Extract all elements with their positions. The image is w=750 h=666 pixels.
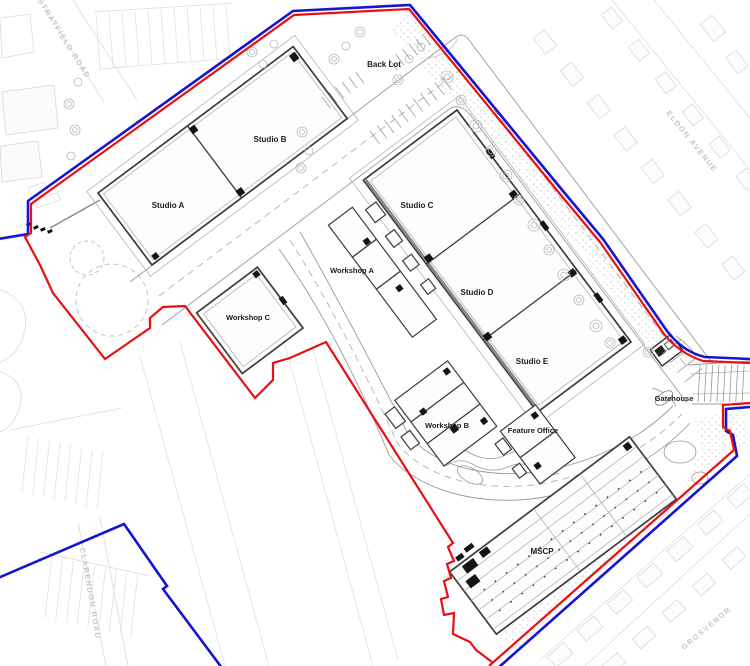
context-street-line [73, 0, 137, 100]
context-curve [0, 372, 21, 432]
terrace-line [161, 10, 165, 64]
landscape-blob [454, 462, 485, 488]
label-studio-b: Studio B [254, 135, 287, 144]
context-house [722, 547, 746, 570]
terrace-line [135, 11, 139, 65]
context-house [587, 94, 610, 118]
tree-icon [355, 27, 365, 37]
parking-bay-line [428, 88, 438, 101]
parking-bay-line [370, 131, 380, 144]
context-house-outline [668, 191, 691, 215]
context-house [641, 159, 664, 183]
context-house [736, 168, 750, 190]
terrace-line [56, 558, 63, 620]
context-house [695, 224, 718, 248]
context-house [577, 616, 603, 641]
context-house [726, 50, 749, 74]
context-house [547, 643, 573, 666]
plant-enclosure [403, 254, 420, 271]
stair-core [464, 543, 475, 553]
context-house-outline [736, 168, 750, 190]
terrace-line [122, 12, 126, 66]
terrace-line [43, 441, 49, 497]
context-line [180, 342, 269, 666]
terrace-line [148, 10, 152, 64]
terrace-line [33, 438, 39, 494]
context-house-outline [632, 626, 656, 649]
label-studio-a: Studio A [152, 201, 185, 210]
context-block [2, 85, 58, 135]
tree-icon [259, 60, 267, 68]
context-house-outline [560, 62, 583, 86]
parking-bay-line [342, 82, 350, 93]
tree-icon [64, 99, 74, 109]
label-gatehouse: Gatehouse [655, 394, 694, 403]
wall-dash [47, 229, 53, 234]
context-curve [0, 290, 26, 362]
terrace-line [45, 556, 52, 618]
context-house [722, 256, 745, 280]
context-line [10, 408, 122, 430]
terrace-line [54, 443, 60, 499]
terrace-line [66, 561, 73, 623]
building-workshop-b [395, 361, 497, 466]
terrace-line [131, 575, 138, 637]
tree-icon [250, 50, 255, 55]
stair-core [455, 553, 464, 562]
context-house-outline [695, 224, 718, 248]
context-house [662, 600, 686, 623]
plant-enclosure [512, 463, 526, 478]
context-block [0, 14, 34, 58]
context-house [700, 15, 725, 42]
parking-bay-line [406, 104, 416, 117]
tree-icon [405, 55, 413, 63]
context-house-outline [602, 653, 626, 666]
context-house-outline [682, 104, 703, 126]
tree-icon [332, 57, 337, 62]
decor-layer [22, 5, 750, 666]
terrace-line [22, 436, 28, 492]
terrace-line [200, 7, 204, 61]
tree-icon [70, 125, 80, 135]
context-house [602, 653, 626, 666]
street-label-grosvenor: GROSVENOR [680, 605, 733, 652]
label-studio-d: Studio D [461, 288, 494, 297]
context-house [668, 191, 691, 215]
context-house [601, 7, 622, 29]
tree-icon [270, 40, 278, 48]
context-house [727, 484, 750, 509]
context-house-outline [697, 510, 723, 535]
terrace-line [120, 573, 127, 635]
tree-icon [73, 128, 78, 133]
context-line [40, 552, 150, 576]
site-plan-canvas: STRATFIELD ROAD ELDON AVENUE CLARENDON R… [0, 0, 750, 666]
tree-icon [299, 166, 304, 171]
tree-icon [329, 54, 339, 64]
plant-enclosure [385, 230, 402, 248]
parking-bay-line [356, 72, 364, 83]
context-house-outline [547, 643, 573, 666]
label-back-lot: Back Lot [367, 60, 401, 69]
tree-icon [67, 152, 75, 160]
context-house [637, 563, 663, 588]
context-house [533, 30, 556, 54]
tree-icon [74, 78, 82, 86]
context-house [607, 590, 633, 615]
parking-bay-line [392, 115, 402, 128]
context-line [312, 346, 398, 660]
terrace-line [77, 563, 84, 625]
context-house-outline [722, 256, 745, 280]
label-workshop-b: Workshop B [425, 421, 470, 430]
parking-bay-line [399, 109, 409, 122]
terrace-line [97, 453, 103, 509]
tree-icon [393, 75, 403, 85]
tree-icon [358, 30, 363, 35]
tree-icon [396, 78, 401, 83]
building-studio-ab [98, 47, 347, 265]
context-house [709, 136, 730, 158]
plant-enclosure [401, 430, 419, 449]
context-layer: STRATFIELD ROAD ELDON AVENUE CLARENDON R… [0, 0, 750, 666]
terrace-line [65, 446, 71, 502]
label-workshop-a: Workshop A [330, 266, 374, 275]
parking-bay-line [420, 93, 430, 106]
parking-bay-line [349, 77, 357, 88]
context-house [655, 72, 676, 94]
context-house [632, 626, 656, 649]
label-workshop-c: Workshop C [226, 313, 271, 322]
parking-bay-line [402, 49, 410, 60]
wall-dash [40, 227, 46, 232]
context-house [560, 62, 583, 86]
parking-bay-line [377, 126, 387, 139]
terrace-line [109, 570, 116, 632]
context-house-outline [637, 563, 663, 588]
context-house-outline [641, 159, 664, 183]
context-house-outline [601, 7, 622, 29]
context-house [682, 104, 703, 126]
context-house-outline [607, 590, 633, 615]
context-block [0, 141, 42, 182]
context-house-outline [667, 537, 693, 562]
site-boundary-red-main [25, 9, 750, 662]
tree-icon [646, 350, 651, 355]
terrace-line [187, 8, 191, 62]
context-house-outline [533, 30, 556, 54]
label-feature-office: Feature Office [508, 426, 558, 435]
landscape-pond [664, 441, 696, 463]
dashed-circle [70, 241, 104, 275]
street-label-stratfield: STRATFIELD ROAD [36, 0, 93, 80]
context-house [614, 127, 637, 151]
plant-enclosure [421, 279, 436, 295]
context-house [697, 510, 723, 535]
context-house-outline [722, 547, 746, 570]
context-house-outline [655, 72, 676, 94]
parking-bay-line [413, 99, 423, 112]
context-house [667, 537, 693, 562]
parking-bay-line [384, 120, 394, 133]
terrace-line [174, 9, 178, 63]
wall-line [50, 200, 100, 228]
terrace-line [86, 450, 92, 506]
tree-icon [67, 102, 72, 107]
tree-icon [342, 42, 350, 50]
context-house-outline [614, 127, 637, 151]
boundary-layer [0, 5, 750, 666]
terrace-line [213, 6, 217, 60]
terrace-line [99, 568, 106, 630]
context-house-outline [587, 94, 610, 118]
context-house-outline [727, 484, 750, 509]
label-studio-c: Studio C [401, 201, 434, 210]
context-line [94, 3, 233, 12]
parking-bay-line [335, 87, 343, 98]
application-boundary-blue-southwest [0, 524, 222, 666]
dashed-circle [76, 264, 148, 336]
context-house-outline [692, 573, 716, 596]
label-mscp: MSCP [530, 547, 554, 556]
context-house-outline [577, 616, 603, 641]
context-line [140, 356, 225, 666]
context-house [692, 573, 716, 596]
context-line [282, 334, 373, 666]
context-house-outline [709, 136, 730, 158]
terrace-line [76, 448, 82, 504]
tree-icon [296, 163, 306, 173]
wall-dash [33, 225, 39, 230]
label-studio-e: Studio E [516, 357, 549, 366]
context-house-outline [662, 600, 686, 623]
terrace-line [226, 5, 230, 59]
